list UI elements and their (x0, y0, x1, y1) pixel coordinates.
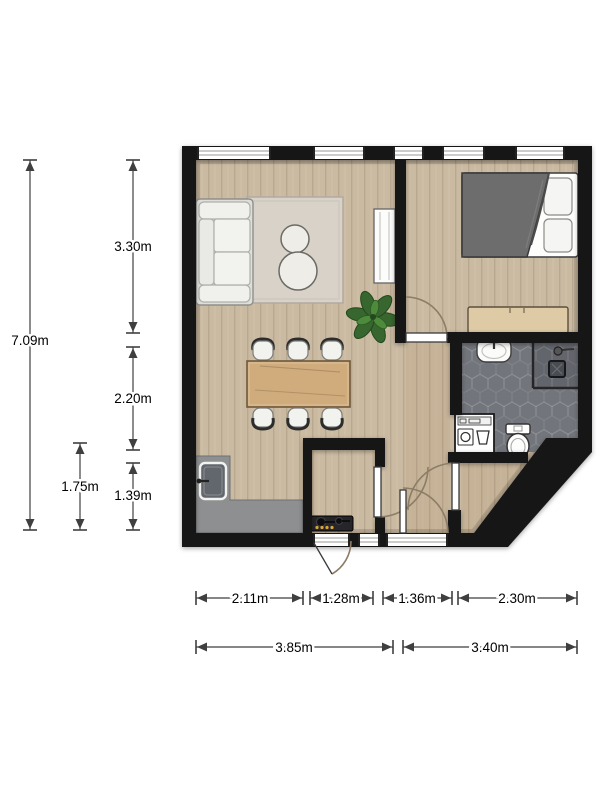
dining-area (247, 339, 350, 429)
dining-chair (288, 339, 309, 360)
wall-bedroom-bath (447, 332, 592, 343)
floor-plan-canvas: 7.09m 3.30m 2.20m 1.39m (0, 0, 600, 800)
window (393, 147, 424, 159)
dining-chairs-bottom (253, 408, 343, 429)
dim-label: 2.11m (232, 591, 269, 606)
dim-label: 1.39m (114, 488, 152, 503)
washing-machine (455, 414, 494, 456)
stove (311, 516, 353, 531)
dim-bathroom-width: 2.30m (458, 591, 577, 606)
front-door-opening (386, 534, 448, 546)
dining-chair (253, 408, 274, 429)
bed (462, 173, 578, 257)
dim-total-depth: 7.09m (11, 160, 49, 530)
wall-bathroom-left (450, 343, 462, 415)
dim-dining-depth: 2.20m (114, 347, 152, 450)
pillow (544, 178, 572, 215)
sofa (196, 199, 253, 305)
bedroom (462, 173, 578, 333)
window (358, 534, 380, 546)
window (515, 147, 565, 159)
dim-label: 1.28m (322, 591, 360, 606)
sideboard (468, 307, 568, 333)
floor-plan: 7.09m 3.30m 2.20m 1.39m (0, 0, 600, 800)
wall-closet-right-lower (375, 517, 385, 533)
dim-left-width: 3.85m (196, 640, 393, 655)
dim-counter-span: 1.75m (61, 443, 99, 530)
dim-hall-width: 1.36m (383, 591, 452, 606)
dim-label: 3.30m (114, 239, 152, 254)
kitchen-sink (197, 463, 226, 499)
dim-label: 3.40m (471, 640, 509, 655)
shower-drain-icon (549, 361, 565, 377)
window (313, 147, 365, 159)
dim-label: 1.36m (398, 591, 436, 606)
dining-chair (288, 408, 309, 429)
dim-label: 2.30m (498, 591, 536, 606)
dim-label: 2.20m (114, 391, 152, 406)
dining-chair (253, 339, 274, 360)
dim-kitchen-width: 2.11m (196, 591, 303, 606)
window (442, 147, 485, 159)
dining-table (247, 361, 350, 407)
dim-label: 1.75m (61, 479, 99, 494)
wall-closet-right-upper (375, 450, 385, 467)
wall-stub-below-bath-door (448, 510, 461, 534)
wall-closet-left (303, 438, 312, 533)
dim-kitchen-depth: 1.39m (114, 463, 152, 530)
wall-closet-top (303, 438, 385, 450)
window (197, 147, 271, 159)
dining-chair (322, 339, 343, 360)
dining-chairs-top (253, 339, 343, 360)
radiator (374, 209, 395, 283)
wall-living-bedroom (395, 160, 406, 343)
dim-right-width: 3.40m (403, 640, 577, 655)
pillow (544, 219, 572, 252)
dim-closet-width: 1.28m (310, 591, 373, 606)
dim-living-depth: 3.30m (114, 160, 152, 333)
dim-label: 7.09m (11, 333, 49, 348)
wall-bathroom-bottom (448, 452, 528, 463)
dim-label: 3.85m (275, 640, 313, 655)
shower (533, 343, 578, 388)
dining-chair (322, 408, 343, 429)
window (313, 534, 350, 546)
